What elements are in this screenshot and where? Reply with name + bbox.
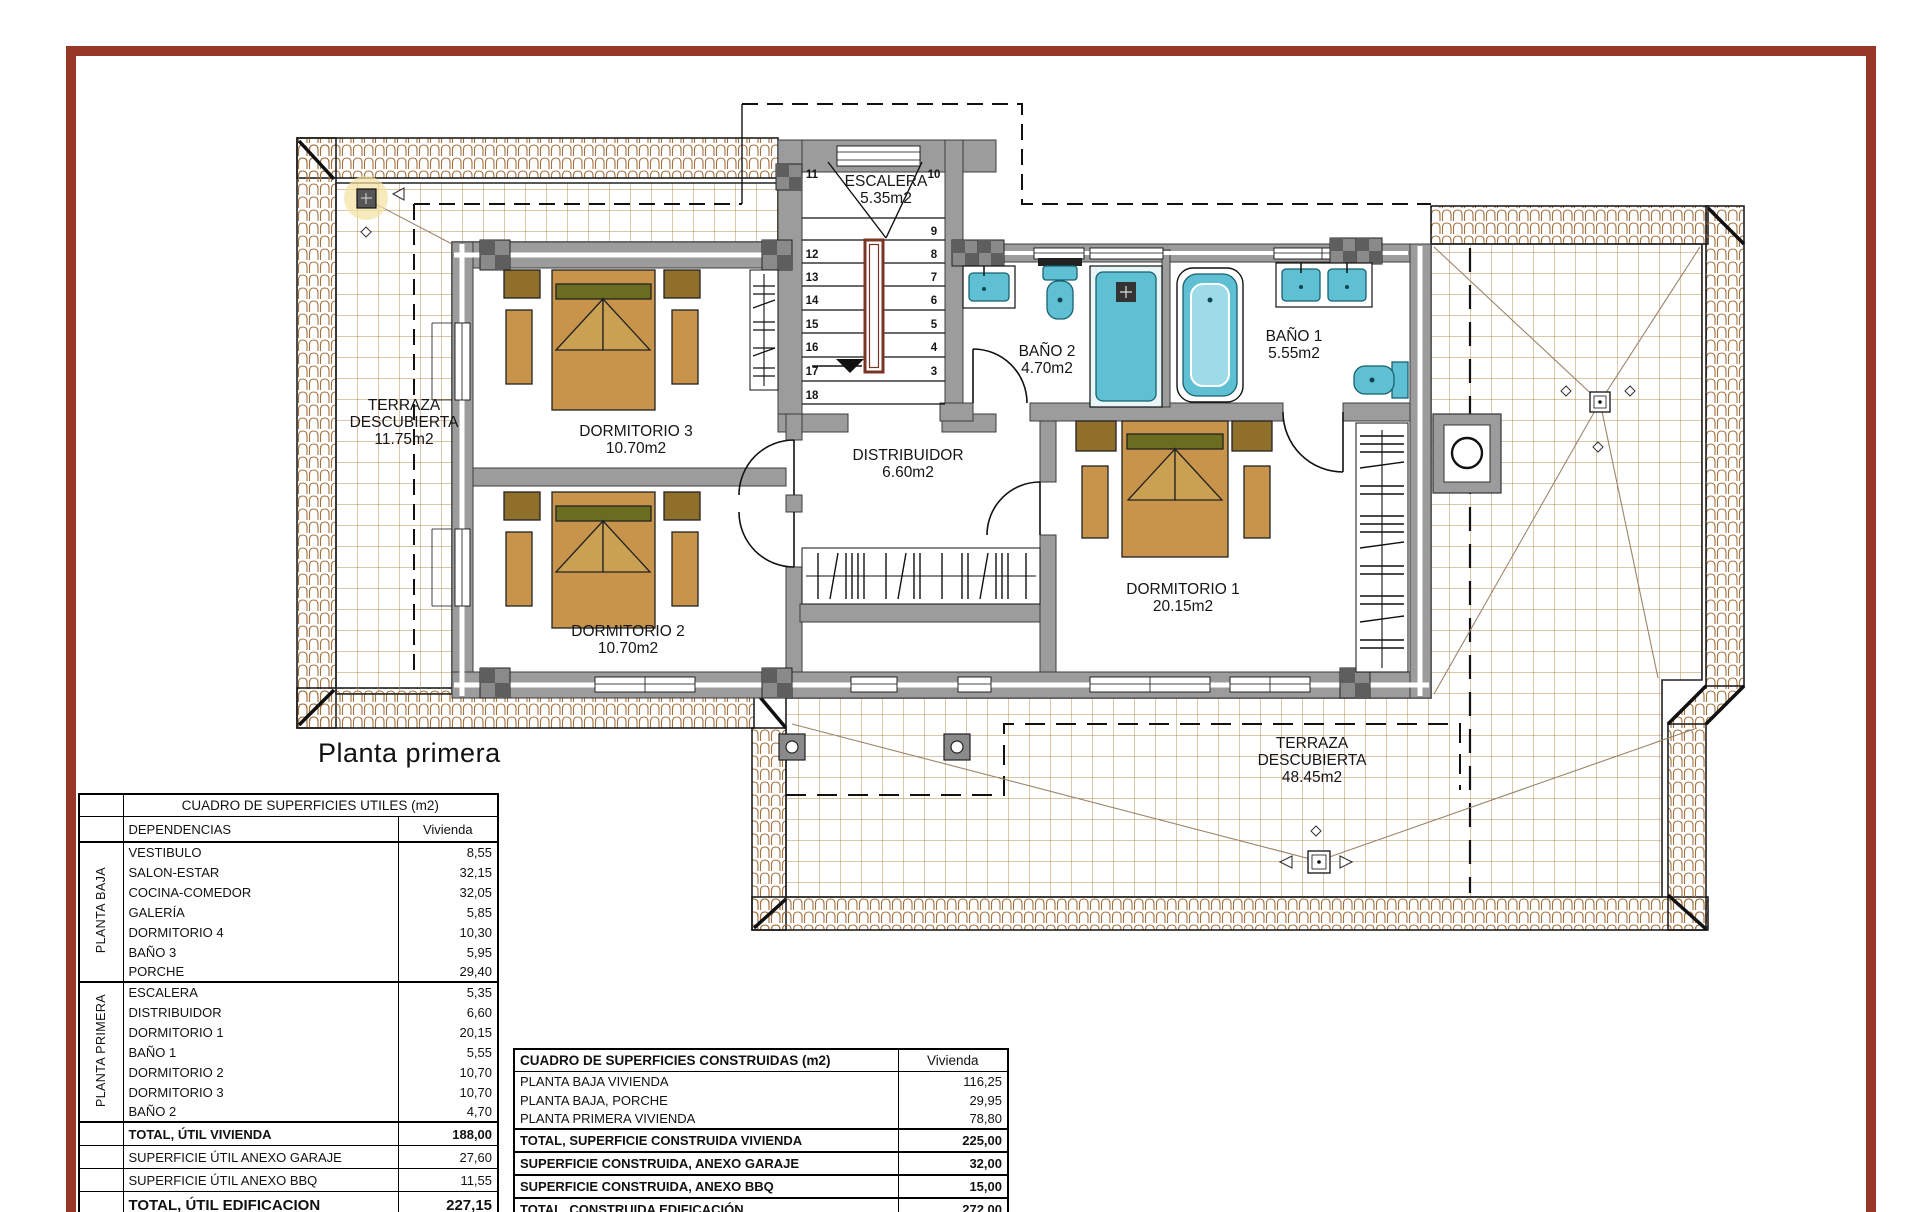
bano2-sink bbox=[963, 266, 1015, 308]
table-corner-cell bbox=[79, 817, 123, 843]
svg-text:18: 18 bbox=[806, 390, 819, 402]
label-dormitorio3: DORMITORIO 3 bbox=[579, 423, 692, 440]
svg-text:16: 16 bbox=[806, 342, 819, 354]
table-row: COCINA-COMEDOR32,05 bbox=[79, 882, 498, 902]
area-value-cell: 8,55 bbox=[398, 842, 498, 862]
area-value-cell: 116,25 bbox=[898, 1072, 1008, 1091]
svg-text:20.15m2: 20.15m2 bbox=[1153, 598, 1213, 615]
summary-stub-cell bbox=[79, 1122, 123, 1146]
svg-text:4: 4 bbox=[931, 342, 938, 354]
area-value-cell: 10,70 bbox=[398, 1082, 498, 1102]
room-name-cell: SALON-ESTAR bbox=[123, 862, 398, 882]
label-escalera: ESCALERA bbox=[845, 173, 928, 190]
area-value-cell: 29,95 bbox=[898, 1091, 1008, 1110]
area-value-cell: 20,15 bbox=[398, 1022, 498, 1042]
area-label-cell: SUPERFICIE CONSTRUIDA, ANEXO GARAJE bbox=[514, 1152, 898, 1175]
area-value-cell: 5,85 bbox=[398, 902, 498, 922]
room-name-cell: DORMITORIO 1 bbox=[123, 1022, 398, 1042]
group-label-1: PLANTA PRIMERA bbox=[79, 982, 123, 1122]
column-header-vivienda: Vivienda bbox=[898, 1049, 1008, 1072]
area-label-cell: PLANTA BAJA VIVIENDA bbox=[514, 1072, 898, 1091]
bano2-shower bbox=[1090, 266, 1162, 407]
svg-text:5.55m2: 5.55m2 bbox=[1268, 345, 1320, 362]
svg-text:DESCUBIERTA: DESCUBIERTA bbox=[350, 414, 459, 431]
label-bano1: BAÑO 1 bbox=[1266, 328, 1323, 345]
label-terraza-bottom: TERRAZA bbox=[1276, 735, 1349, 752]
area-value-cell: 5,55 bbox=[398, 1042, 498, 1062]
svg-text:9: 9 bbox=[931, 226, 937, 238]
table-row: PLANTA BAJA VIVIENDA116,25 bbox=[514, 1072, 1008, 1091]
svg-text:14: 14 bbox=[806, 295, 819, 307]
room-name-cell: DISTRIBUIDOR bbox=[123, 1002, 398, 1022]
svg-text:7: 7 bbox=[931, 272, 937, 284]
summary-stub-cell bbox=[79, 1192, 123, 1212]
room-name-cell: COCINA-COMEDOR bbox=[123, 882, 398, 902]
table-row: SALON-ESTAR32,15 bbox=[79, 862, 498, 882]
summary-stub-cell bbox=[79, 1169, 123, 1192]
table-row: SUPERFICIE CONSTRUIDA, ANEXO BBQ15,00 bbox=[514, 1175, 1008, 1198]
summary-label-cell: SUPERFICIE ÚTIL ANEXO GARAJE bbox=[123, 1146, 398, 1169]
room-name-cell: BAÑO 2 bbox=[123, 1102, 398, 1122]
bano1-double-sink bbox=[1276, 263, 1372, 307]
table-row: PLANTA PRIMERAESCALERA5,35 bbox=[79, 982, 498, 1002]
label-distribuidor: DISTRIBUIDOR bbox=[852, 447, 963, 464]
label-dormitorio1: DORMITORIO 1 bbox=[1126, 581, 1239, 598]
area-value-cell: 10,70 bbox=[398, 1062, 498, 1082]
area-value-cell: 32,00 bbox=[898, 1152, 1008, 1175]
table-row: TOTAL, SUPERFICIE CONSTRUIDA VIVIENDA225… bbox=[514, 1129, 1008, 1152]
room-name-cell: BAÑO 1 bbox=[123, 1042, 398, 1062]
svg-text:11.75m2: 11.75m2 bbox=[374, 431, 433, 448]
svg-text:15: 15 bbox=[806, 319, 819, 331]
svg-text:DESCUBIERTA: DESCUBIERTA bbox=[1258, 752, 1367, 769]
useful-areas-table: CUADRO DE SUPERFICIES UTILES (m2) DEPEND… bbox=[78, 793, 499, 1212]
svg-text:48.45m2: 48.45m2 bbox=[1282, 769, 1342, 786]
summary-row: TOTAL, ÚTIL EDIFICACION227,15 bbox=[79, 1192, 498, 1212]
summary-value-cell: 188,00 bbox=[398, 1122, 498, 1146]
table-row: GALERÍA5,85 bbox=[79, 902, 498, 922]
area-label-cell: PLANTA PRIMERA VIVIENDA bbox=[514, 1110, 898, 1129]
summary-label-cell: TOTAL, ÚTIL VIVIENDA bbox=[123, 1122, 398, 1146]
svg-text:11: 11 bbox=[806, 169, 819, 181]
svg-text:13: 13 bbox=[806, 272, 819, 284]
area-value-cell: 78,80 bbox=[898, 1110, 1008, 1129]
column-header-vivienda: Vivienda bbox=[398, 817, 498, 843]
table-row: TOTAL, CONSTRUIDA EDIFICACIÓN272,00 bbox=[514, 1198, 1008, 1212]
area-value-cell: 32,15 bbox=[398, 862, 498, 882]
label-terraza-left: TERRAZA bbox=[368, 397, 441, 414]
blueprint-sheet: 11 12 13 14 15 16 17 18 10 9 8 7 6 5 4 3 bbox=[0, 0, 1920, 1212]
summary-label-cell: TOTAL, ÚTIL EDIFICACION bbox=[123, 1192, 398, 1212]
built-areas-table: CUADRO DE SUPERFICIES CONSTRUIDAS (m2) V… bbox=[513, 1048, 1009, 1212]
table-row: BAÑO 15,55 bbox=[79, 1042, 498, 1062]
area-value-cell: 5,35 bbox=[398, 982, 498, 1002]
room-name-cell: DORMITORIO 3 bbox=[123, 1082, 398, 1102]
label-dormitorio2: DORMITORIO 2 bbox=[571, 623, 684, 640]
area-label-cell: SUPERFICIE CONSTRUIDA, ANEXO BBQ bbox=[514, 1175, 898, 1198]
svg-text:10.70m2: 10.70m2 bbox=[606, 440, 666, 457]
area-value-cell: 15,00 bbox=[898, 1175, 1008, 1198]
group-label-0: PLANTA BAJA bbox=[79, 842, 123, 982]
table-row: PORCHE29,40 bbox=[79, 962, 498, 982]
area-value-cell: 6,60 bbox=[398, 1002, 498, 1022]
summary-row: SUPERFICIE ÚTIL ANEXO BBQ11,55 bbox=[79, 1169, 498, 1192]
svg-text:17: 17 bbox=[806, 366, 819, 378]
area-value-cell: 32,05 bbox=[398, 882, 498, 902]
table-row: PLANTA BAJAVESTIBULO8,55 bbox=[79, 842, 498, 862]
summary-row: TOTAL, ÚTIL VIVIENDA188,00 bbox=[79, 1122, 498, 1146]
svg-text:10: 10 bbox=[928, 169, 941, 181]
area-label-cell: PLANTA BAJA, PORCHE bbox=[514, 1091, 898, 1110]
summary-label-cell: SUPERFICIE ÚTIL ANEXO BBQ bbox=[123, 1169, 398, 1192]
svg-text:4.70m2: 4.70m2 bbox=[1021, 360, 1073, 377]
svg-text:5.35m2: 5.35m2 bbox=[860, 190, 912, 207]
area-value-cell: 5,95 bbox=[398, 942, 498, 962]
svg-text:12: 12 bbox=[806, 249, 819, 261]
room-name-cell: DORMITORIO 2 bbox=[123, 1062, 398, 1082]
area-label-cell: TOTAL, CONSTRUIDA EDIFICACIÓN bbox=[514, 1198, 898, 1212]
bano1-bathtub bbox=[1177, 268, 1243, 402]
area-value-cell: 225,00 bbox=[898, 1129, 1008, 1152]
table-row: DORMITORIO 120,15 bbox=[79, 1022, 498, 1042]
table-row: SUPERFICIE CONSTRUIDA, ANEXO GARAJE32,00 bbox=[514, 1152, 1008, 1175]
svg-text:6: 6 bbox=[931, 295, 937, 307]
room-name-cell: BAÑO 3 bbox=[123, 942, 398, 962]
svg-text:5: 5 bbox=[931, 319, 938, 331]
label-bano2: BAÑO 2 bbox=[1019, 343, 1076, 360]
table-row: DISTRIBUIDOR6,60 bbox=[79, 1002, 498, 1022]
table-row: BAÑO 35,95 bbox=[79, 942, 498, 962]
summary-value-cell: 11,55 bbox=[398, 1169, 498, 1192]
summary-row: SUPERFICIE ÚTIL ANEXO GARAJE27,60 bbox=[79, 1146, 498, 1169]
summary-value-cell: 227,15 bbox=[398, 1192, 498, 1212]
svg-text:10.70m2: 10.70m2 bbox=[598, 640, 658, 657]
svg-text:6.60m2: 6.60m2 bbox=[882, 464, 934, 481]
table-title: CUADRO DE SUPERFICIES CONSTRUIDAS (m2) bbox=[514, 1049, 898, 1072]
svg-text:8: 8 bbox=[931, 249, 938, 261]
room-name-cell: DORMITORIO 4 bbox=[123, 922, 398, 942]
area-value-cell: 4,70 bbox=[398, 1102, 498, 1122]
plan-title: Planta primera bbox=[318, 738, 501, 769]
bano1-toilet bbox=[1354, 362, 1408, 398]
table-corner-cell bbox=[79, 794, 123, 817]
table-row: DORMITORIO 410,30 bbox=[79, 922, 498, 942]
area-value-cell: 272,00 bbox=[898, 1198, 1008, 1212]
table-row: PLANTA PRIMERA VIVIENDA78,80 bbox=[514, 1110, 1008, 1129]
area-label-cell: TOTAL, SUPERFICIE CONSTRUIDA VIVIENDA bbox=[514, 1129, 898, 1152]
table-row: BAÑO 24,70 bbox=[79, 1102, 498, 1122]
room-name-cell: GALERÍA bbox=[123, 902, 398, 922]
summary-stub-cell bbox=[79, 1146, 123, 1169]
svg-text:3: 3 bbox=[931, 366, 937, 378]
table-row: PLANTA BAJA, PORCHE29,95 bbox=[514, 1091, 1008, 1110]
table-row: DORMITORIO 210,70 bbox=[79, 1062, 498, 1082]
room-name-cell: ESCALERA bbox=[123, 982, 398, 1002]
room-name-cell: PORCHE bbox=[123, 962, 398, 982]
table-title: CUADRO DE SUPERFICIES UTILES (m2) bbox=[123, 794, 498, 817]
room-name-cell: VESTIBULO bbox=[123, 842, 398, 862]
chimney bbox=[1433, 414, 1501, 493]
area-value-cell: 29,40 bbox=[398, 962, 498, 982]
table-row: DORMITORIO 310,70 bbox=[79, 1082, 498, 1102]
area-value-cell: 10,30 bbox=[398, 922, 498, 942]
summary-value-cell: 27,60 bbox=[398, 1146, 498, 1169]
column-header-dependencias: DEPENDENCIAS bbox=[123, 817, 398, 843]
